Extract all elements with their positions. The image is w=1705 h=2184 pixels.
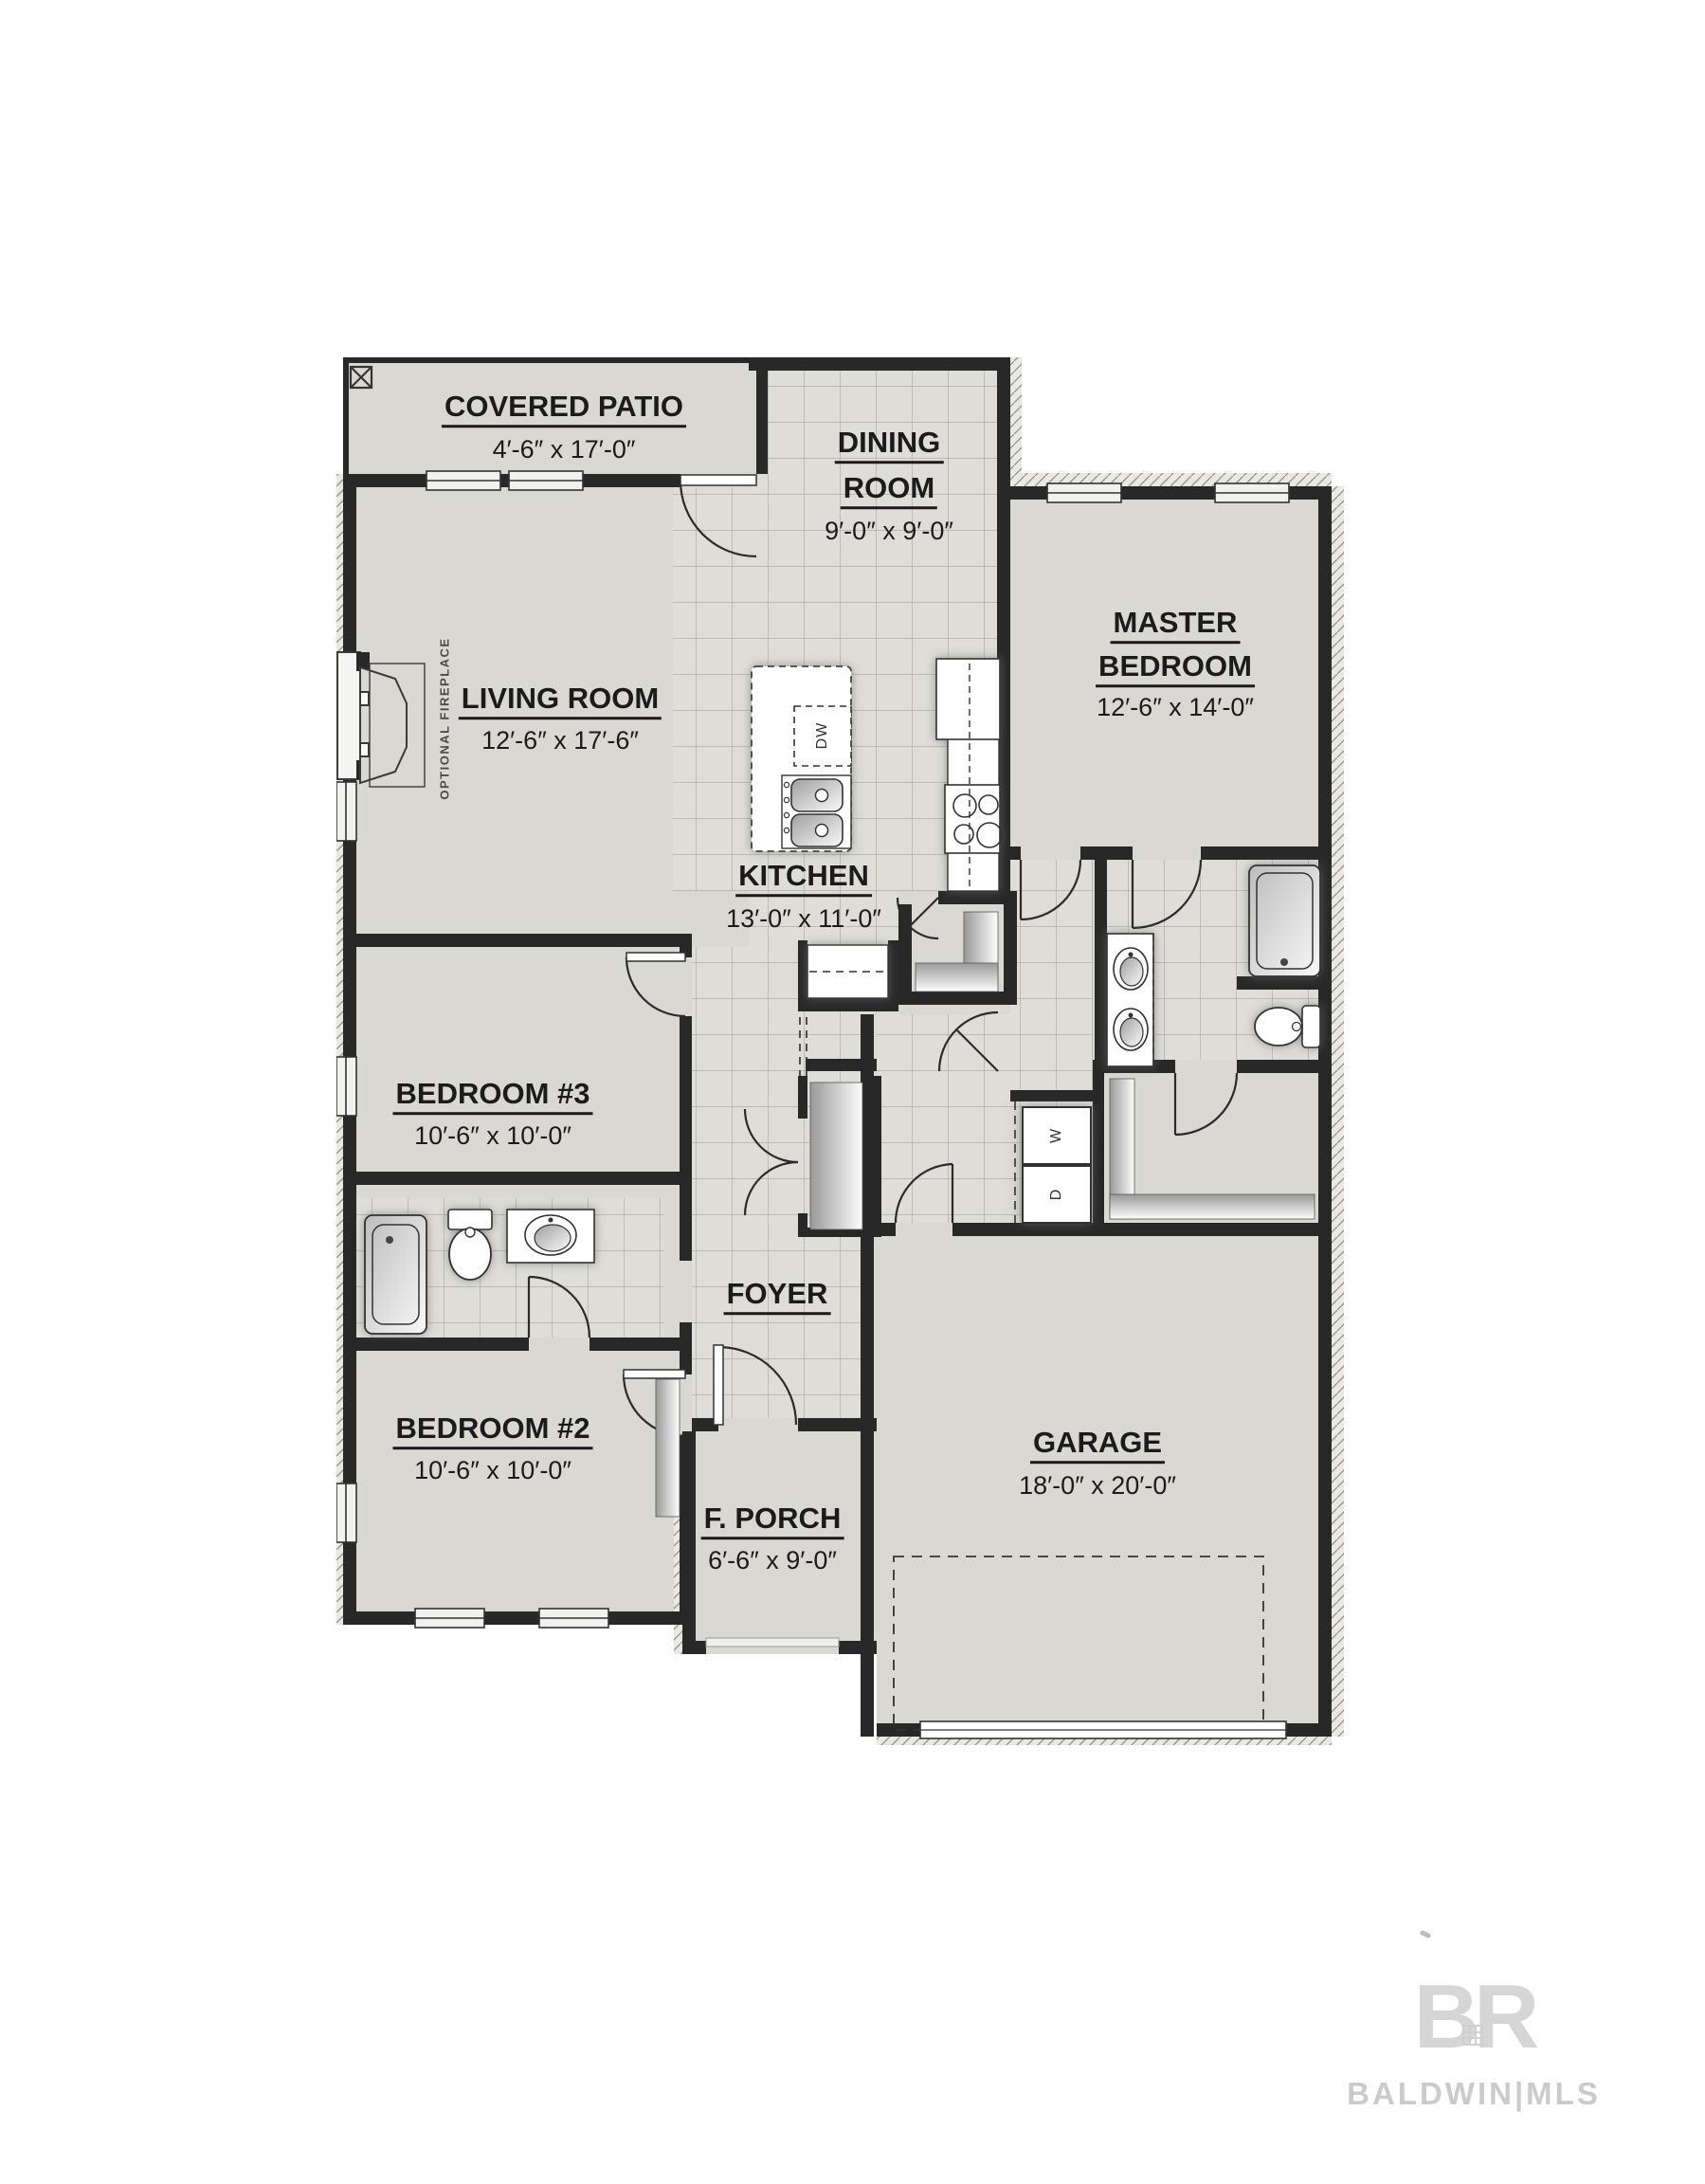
room-dims-living: 12′-6″ x 17′-6″	[481, 727, 639, 754]
room-dims-porch: 6′-6″ x 9′-0″	[708, 1547, 837, 1574]
dryer-label: D	[1048, 1189, 1065, 1201]
baldwin-mls-logo: BR	[1332, 1972, 1616, 2063]
room-dims-kitchen: 13′-0″ x 11′-0″	[726, 905, 881, 932]
baldwin-mls-watermark: BR BALDWIN|MLS	[1332, 1972, 1616, 2112]
room-dims-covered-patio: 4′-6″ x 17′-0″	[493, 436, 636, 463]
room-label-covered-patio: COVERED PATIO	[442, 391, 686, 428]
room-dims-bedroom3: 10′-6″ x 10′-0″	[414, 1122, 571, 1149]
room-label-porch: F. PORCH	[701, 1503, 844, 1539]
scan-artifact	[1420, 1930, 1432, 1938]
room-label-living: LIVING ROOM	[459, 683, 662, 719]
room-label-dining-1: DINING	[835, 428, 944, 464]
room-dims-garage: 18′-0″ x 20′-0″	[1019, 1472, 1176, 1499]
room-label-foyer: FOYER	[724, 1279, 831, 1315]
floorplan-page: COVERED PATIO 4′-6″ x 17′-0″ DINING ROOM…	[0, 0, 1705, 2184]
room-label-master-2: BEDROOM	[1096, 651, 1255, 687]
room-dims-master: 12′-6″ x 14′-0″	[1097, 694, 1254, 720]
room-label-bedroom3: BEDROOM #3	[393, 1079, 593, 1115]
room-dims-dining: 9′-0″ x 9′-0″	[825, 518, 953, 544]
baldwin-mls-brand-text: BALDWIN|MLS	[1332, 2076, 1616, 2112]
room-label-kitchen: KITCHEN	[735, 861, 872, 897]
dishwasher-label: DW	[814, 722, 831, 750]
room-label-bedroom2: BEDROOM #2	[393, 1413, 593, 1449]
room-label-master-1: MASTER	[1111, 608, 1241, 644]
label-overlay: COVERED PATIO 4′-6″ x 17′-0″ DINING ROOM…	[336, 351, 1346, 1749]
logo-window-icon	[1462, 2025, 1483, 2046]
optional-fireplace-note: OPTIONAL FIREPLACE	[438, 637, 452, 799]
room-label-garage: GARAGE	[1030, 1428, 1165, 1464]
room-dims-bedroom2: 10′-6″ x 10′-0″	[414, 1457, 571, 1483]
floorplan-drawing: COVERED PATIO 4′-6″ x 17′-0″ DINING ROOM…	[336, 351, 1346, 1749]
room-label-dining-2: ROOM	[841, 473, 937, 509]
washer-label: W	[1048, 1128, 1065, 1143]
